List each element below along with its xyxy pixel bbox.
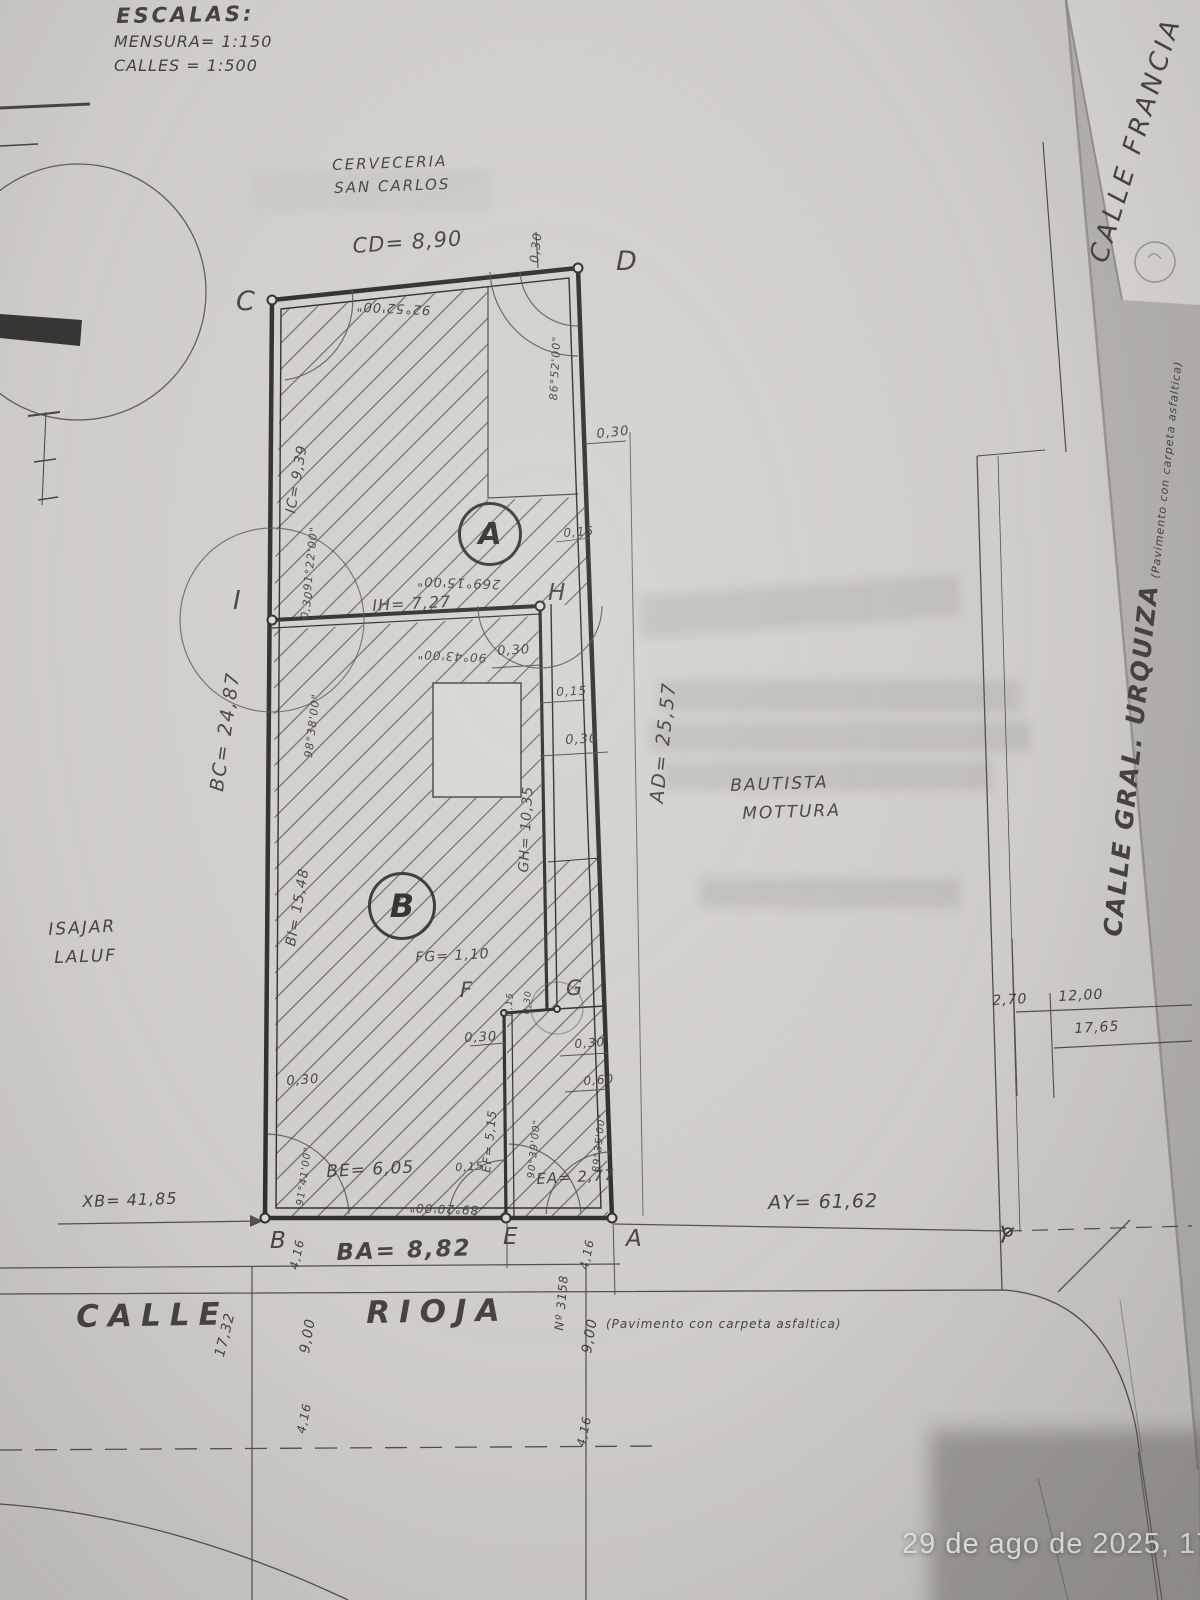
paper-sheet	[0, 0, 1200, 1600]
table-1200: 12,00	[1058, 988, 1104, 1004]
dim-ay: AY= 61,62	[768, 1192, 878, 1213]
neighbor-cerveceria-line1: CERVECERIA	[332, 154, 448, 173]
offset-030-below-g: 0,30	[574, 1036, 605, 1050]
camera-timestamp: 29 de ago de 2025, 17:17	[902, 1528, 1200, 1561]
point-g: G	[566, 978, 583, 999]
parcel-b-circle: B	[368, 872, 436, 940]
corner-shadow	[930, 1430, 1200, 1600]
scale-mensura: MENSURA= 1:150	[114, 34, 272, 50]
table-270: 2,70	[992, 992, 1028, 1008]
offset-015-right-strip: 0,15	[556, 684, 587, 698]
angle-c: 92°52'00"	[355, 299, 430, 316]
street-calle: CALLE	[76, 1299, 229, 1333]
point-h: H	[548, 582, 566, 605]
street-rioja-note: (Pavimento con carpeta asfaltica)	[606, 1318, 842, 1330]
angle-e-left: 89°20'00"	[408, 1202, 478, 1216]
building-outline	[433, 683, 521, 797]
offset-015-near-e: 0,15	[455, 1161, 484, 1173]
angle-d: 86°52'00"	[548, 336, 562, 401]
dim-ih: IH= 7,27	[372, 594, 452, 614]
scale-calles: CALLES = 1:500	[114, 58, 258, 74]
dim-ba: BA= 8,82	[336, 1237, 472, 1265]
plan-linework	[0, 0, 1200, 1600]
neighbor-mottura-line1: BAUTISTA	[730, 775, 829, 795]
scales-title: ESCALAS:	[116, 4, 255, 27]
dim-fg: FG= 1,10	[415, 947, 490, 965]
offset-015-near-a-circle: 0,15	[563, 525, 594, 539]
point-b: B	[270, 1230, 287, 1253]
neighbor-mottura-line2: MOTTURA	[742, 803, 841, 823]
offset-030-right-strip: 0,30	[565, 732, 599, 747]
dim-ea: EA= 2,77	[536, 1168, 615, 1187]
parcel-b-letter: B	[390, 887, 414, 925]
point-i: I	[233, 588, 242, 614]
point-f: F	[460, 980, 473, 1001]
dim-xb: XB= 41,85	[82, 1191, 178, 1210]
point-e: E	[503, 1226, 519, 1249]
offset-060-strip: 0,60	[583, 1073, 614, 1087]
parcel-a-circle: A	[458, 502, 522, 566]
offset-030-below-f: 0,30	[464, 1030, 498, 1045]
offset-030-above-d: 0,30	[528, 232, 544, 264]
offset-030-near-b: 0,30	[286, 1073, 320, 1088]
table-1765: 17,65	[1074, 1020, 1120, 1036]
point-d: D	[616, 248, 638, 275]
neighbor-laluf-line1: ISAJAR	[48, 918, 117, 939]
street-rioja: RIOJA	[366, 1296, 509, 1329]
angle-a-interior: 269°15'00"	[416, 574, 500, 590]
point-a: A	[626, 1228, 643, 1251]
offset-030-right-of-d: 0,30	[596, 425, 630, 441]
neighbor-laluf-line2: LALUF	[54, 948, 117, 967]
angle-h: 90°43'00"	[416, 648, 486, 664]
parcel-a-letter: A	[478, 517, 501, 552]
offset-030-below-h: 0,30	[497, 643, 531, 658]
survey-plan-photo: ESCALAS: MENSURA= 1:150 CALLES = 1:500 C…	[0, 0, 1200, 1600]
point-c: C	[236, 288, 256, 315]
neighbor-cerveceria-line2: SAN CARLOS	[334, 177, 451, 196]
dim-be: BE= 6,05	[326, 1159, 415, 1181]
